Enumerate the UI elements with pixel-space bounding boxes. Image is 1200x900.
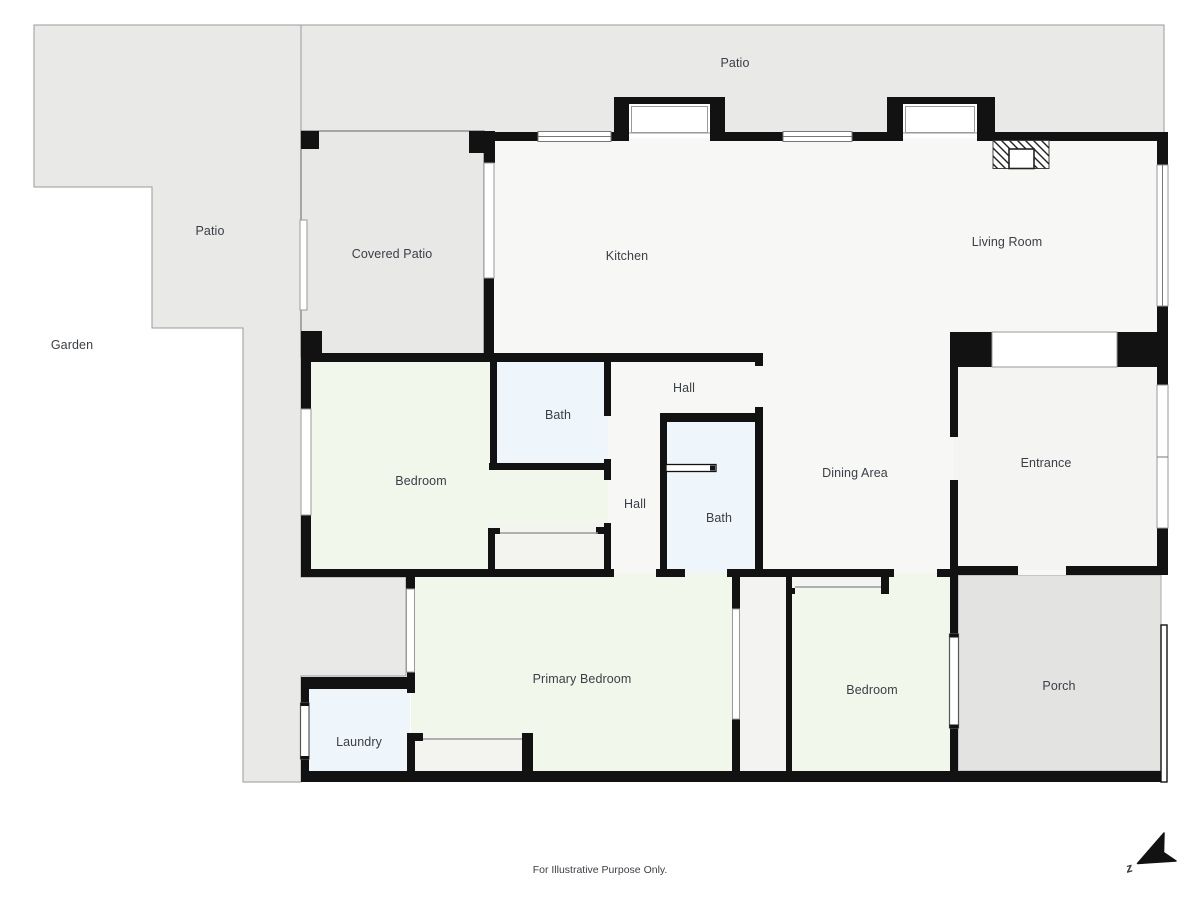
svg-text:Porch: Porch (1042, 679, 1075, 693)
svg-text:Bath: Bath (706, 511, 732, 525)
svg-text:Laundry: Laundry (336, 735, 383, 749)
svg-text:Hall: Hall (624, 497, 646, 511)
svg-text:Bedroom: Bedroom (395, 474, 446, 488)
svg-text:Patio: Patio (196, 224, 225, 238)
svg-text:Primary Bedroom: Primary Bedroom (533, 672, 632, 686)
svg-text:Dining Area: Dining Area (822, 466, 888, 480)
svg-text:Garden: Garden (51, 338, 93, 352)
svg-text:Living Room: Living Room (972, 235, 1043, 249)
svg-text:Kitchen: Kitchen (606, 249, 648, 263)
svg-text:For Illustrative Purpose Only.: For Illustrative Purpose Only. (533, 864, 668, 876)
svg-text:Bath: Bath (545, 408, 571, 422)
svg-text:Entrance: Entrance (1021, 456, 1072, 470)
svg-text:Hall: Hall (673, 381, 695, 395)
svg-text:Covered Patio: Covered Patio (352, 247, 433, 261)
svg-text:Bedroom: Bedroom (846, 683, 897, 697)
svg-text:Patio: Patio (721, 56, 750, 70)
